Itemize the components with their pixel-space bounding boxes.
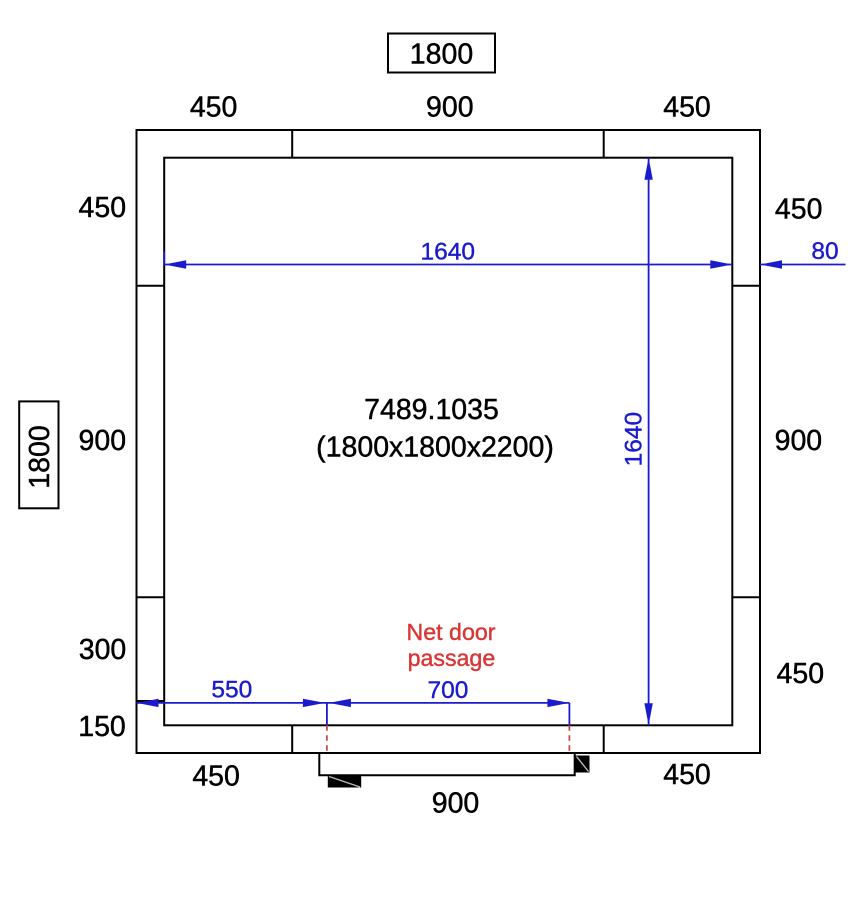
svg-text:1640: 1640	[421, 238, 476, 265]
svg-text:900: 900	[432, 787, 480, 819]
svg-text:900: 900	[426, 91, 474, 123]
svg-text:450: 450	[192, 761, 240, 793]
svg-text:80: 80	[811, 238, 838, 265]
svg-text:900: 900	[775, 425, 823, 457]
svg-text:450: 450	[190, 91, 238, 123]
svg-text:450: 450	[663, 91, 711, 123]
svg-text:300: 300	[79, 634, 127, 666]
svg-text:1800: 1800	[410, 39, 473, 71]
svg-text:Net door: Net door	[407, 619, 496, 645]
svg-text:1640: 1640	[621, 412, 648, 467]
svg-text:(1800x1800x2200): (1800x1800x2200)	[316, 431, 554, 463]
svg-text:450: 450	[663, 759, 711, 791]
svg-text:700: 700	[428, 677, 469, 704]
svg-text:450: 450	[79, 192, 127, 224]
svg-text:900: 900	[79, 425, 127, 457]
svg-text:550: 550	[211, 676, 252, 703]
svg-text:150: 150	[78, 711, 126, 743]
svg-text:450: 450	[775, 194, 823, 226]
svg-text:7489.1035: 7489.1035	[364, 394, 499, 426]
svg-text:1800: 1800	[24, 425, 56, 488]
svg-text:450: 450	[777, 658, 825, 690]
svg-text:passage: passage	[408, 645, 496, 671]
